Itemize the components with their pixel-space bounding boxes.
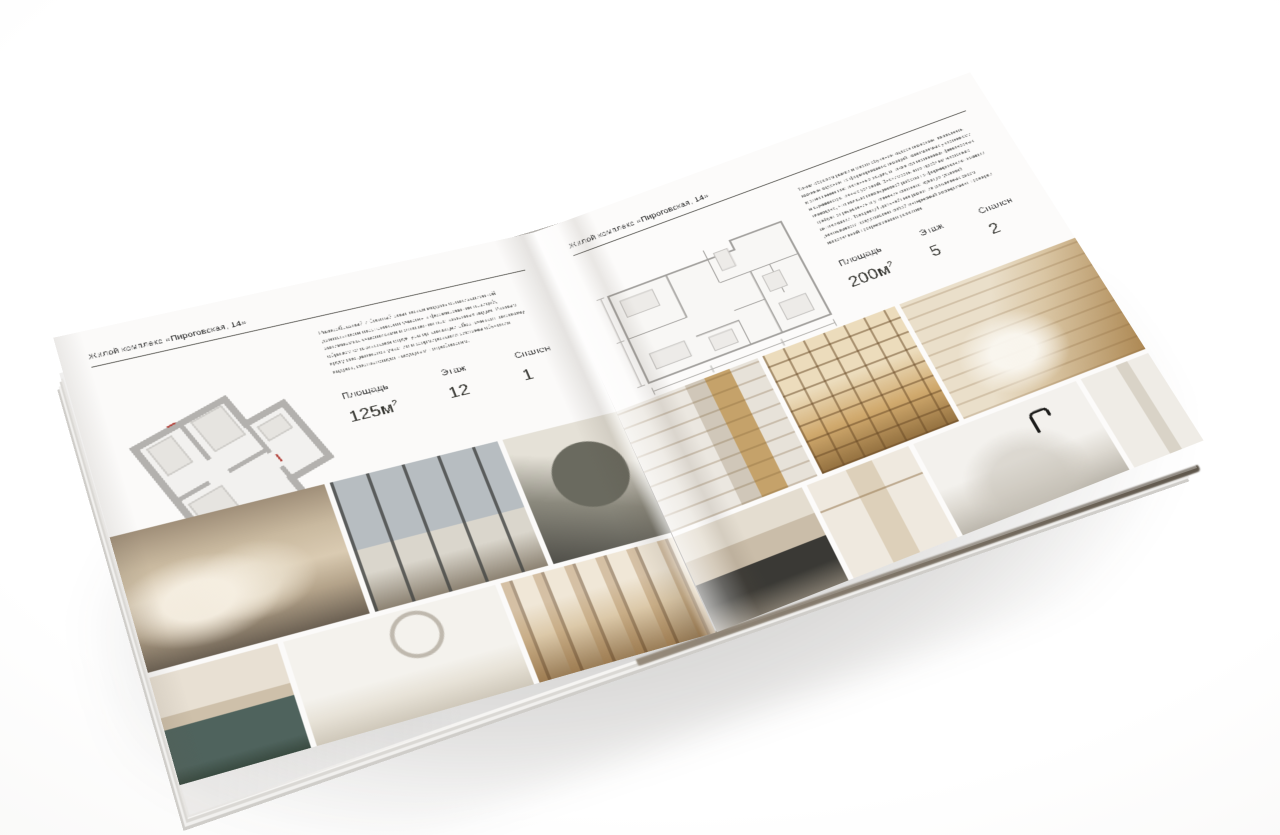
faucet-icon [1018,399,1068,441]
spec-floor: Этаж 12 [439,363,477,402]
mockup-scene: Жилой комплекс «Пироговская, 14» [0,0,1280,835]
spec-floor: Этаж 5 [918,222,959,261]
spec-bedrooms: Спален 2 [977,196,1029,239]
spec-area: Площадь 200м2 [837,244,899,292]
spec-area: Площадь 125м2 [340,381,402,426]
spec-bedrooms: Спален 1 [513,343,563,384]
